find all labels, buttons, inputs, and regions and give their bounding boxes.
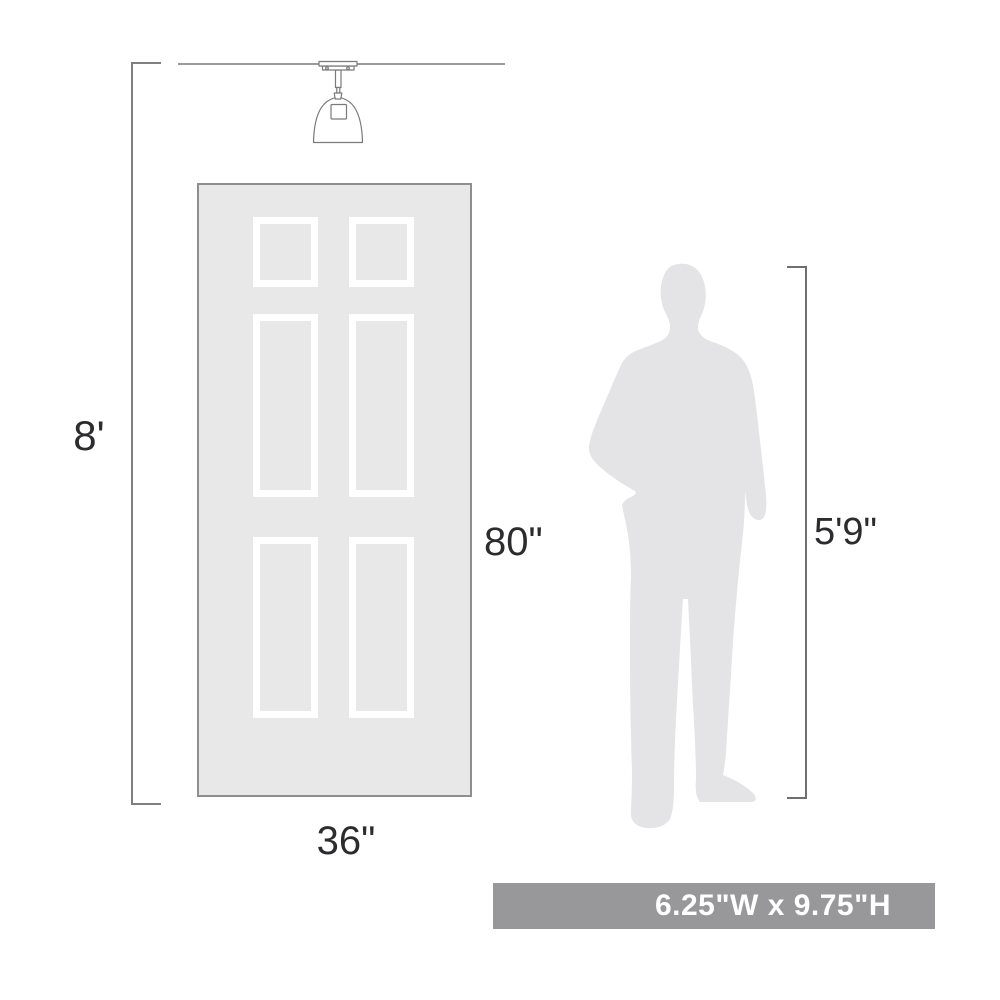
door-panel xyxy=(253,314,318,497)
door-panel xyxy=(253,217,318,287)
product-dimensions-banner: 6.25"W x 9.75"H xyxy=(493,883,935,929)
ceiling-height-label: 8' xyxy=(52,413,126,459)
person-height-label: 5'9" xyxy=(814,511,877,553)
person-height-dimension-line xyxy=(787,266,807,799)
product-dimensions-label: 6.25"W x 9.75"H xyxy=(655,883,935,929)
product-scale-diagram: 8' 80" 36" 5'9" xyxy=(0,0,1000,1000)
door-panel xyxy=(349,217,414,287)
door-panel xyxy=(253,537,318,718)
ceiling-height-dimension-line xyxy=(131,62,161,805)
door-height-label: 80" xyxy=(484,520,543,564)
door-width-label: 36" xyxy=(297,819,395,863)
semi-flush-ceiling-light-icon xyxy=(310,57,366,144)
man-silhouette-icon xyxy=(586,261,778,834)
door-panel xyxy=(349,537,414,718)
door-panel xyxy=(349,314,414,497)
door xyxy=(197,183,472,797)
